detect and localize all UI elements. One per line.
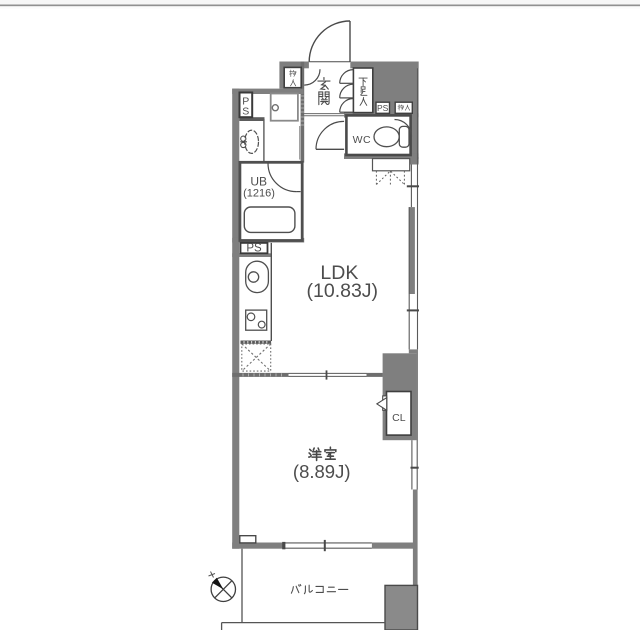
svg-text:(1216): (1216) (243, 187, 275, 199)
svg-text:CL: CL (392, 412, 406, 424)
svg-text:(8.89J): (8.89J) (293, 461, 351, 482)
svg-text:(10.83J): (10.83J) (307, 280, 379, 302)
svg-text:PS: PS (377, 103, 389, 113)
svg-text:S: S (242, 106, 249, 118)
svg-text:PS: PS (246, 243, 262, 255)
svg-text:WC: WC (353, 134, 371, 146)
